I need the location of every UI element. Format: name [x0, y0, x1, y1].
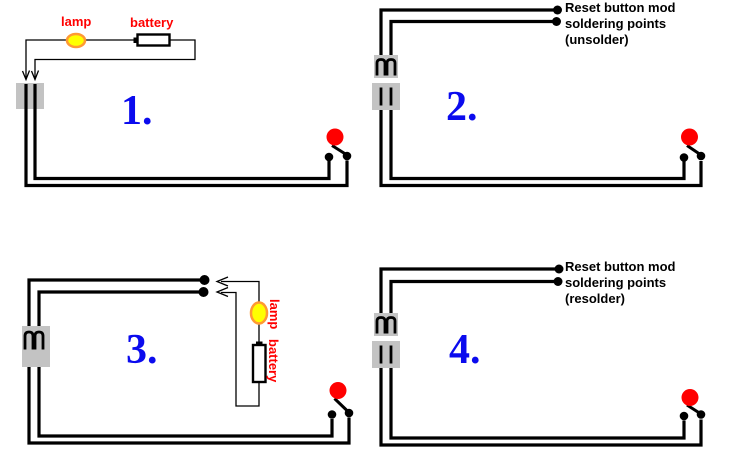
switch-contact-dot — [697, 152, 706, 161]
panel-2-note-line-1: Reset button mod — [565, 0, 676, 16]
connector-socket-icon — [372, 83, 400, 110]
lamp-icon — [251, 303, 267, 324]
wire — [381, 10, 554, 58]
battery-icon — [138, 35, 170, 46]
solder-point-dot — [555, 265, 564, 274]
panel-1-lamp-label: lamp — [61, 14, 91, 30]
battery-terminal — [134, 38, 139, 44]
switch-contact-dot — [680, 153, 689, 162]
switch-contact-dot — [345, 409, 354, 418]
connector-socket-icon — [16, 83, 44, 109]
wire — [39, 292, 332, 436]
panel-4-note-line-3: (resolder) — [565, 291, 676, 307]
panel-3-lamp-label: lamp — [266, 299, 282, 329]
wiring-diagram-svg — [0, 0, 731, 470]
wire — [391, 110, 684, 179]
reset-button-icon — [681, 129, 698, 146]
solder-point-dot — [552, 17, 561, 26]
panel-3-battery-label: battery — [265, 339, 281, 382]
switch-contact-dot — [343, 152, 352, 161]
panel-2-note: Reset button mod soldering points (unsol… — [565, 0, 676, 48]
switch-contact-dot — [697, 410, 706, 419]
solder-point-dot — [200, 275, 210, 285]
solder-point-dot — [553, 6, 562, 15]
wire — [381, 368, 701, 445]
panel-4-note-line-1: Reset button mod — [565, 259, 676, 275]
reset-button-icon — [327, 129, 344, 146]
switch-contact-dot — [680, 412, 689, 421]
panel-2-number: 2. — [446, 86, 478, 128]
panel-2-note-line-2: soldering points — [565, 16, 676, 32]
test-circuit-wire — [221, 282, 259, 407]
panel-1-battery-label: battery — [130, 15, 173, 31]
panel-1-number: 1. — [121, 90, 153, 132]
panel-4-number: 4. — [449, 329, 481, 371]
wire — [391, 22, 553, 59]
panel-3-number: 3. — [126, 329, 158, 371]
circuit-diagram-canvas: lamp battery 1. Reset button mod solderi… — [0, 0, 731, 470]
panel-3 — [22, 275, 353, 443]
wire — [35, 84, 329, 179]
solder-point-dot — [199, 287, 209, 297]
panel-2-note-line-3: (unsolder) — [565, 32, 676, 48]
connector-socket-icon — [372, 341, 400, 368]
panel-4-note-line-2: soldering points — [565, 275, 676, 291]
wire — [381, 269, 556, 316]
panel-1 — [16, 34, 351, 186]
wire — [29, 280, 349, 443]
battery-icon — [253, 345, 266, 382]
battery-terminal — [256, 342, 263, 347]
solder-point-dot — [554, 277, 563, 286]
reset-button-icon — [330, 382, 347, 399]
lamp-icon — [67, 34, 85, 47]
wire — [381, 110, 701, 186]
panel-4-note: Reset button mod soldering points (resol… — [565, 259, 676, 307]
wire — [391, 282, 555, 317]
reset-button-icon — [682, 389, 699, 406]
switch-contact-dot — [325, 153, 334, 162]
wire — [391, 368, 684, 438]
wire — [26, 84, 347, 186]
switch-contact-dot — [328, 410, 337, 419]
